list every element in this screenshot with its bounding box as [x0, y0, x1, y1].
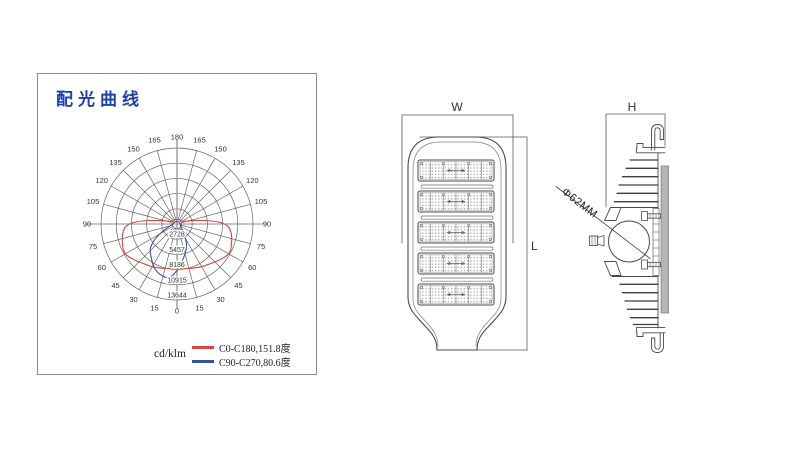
- svg-text:13644: 13644: [167, 293, 187, 300]
- svg-text:60: 60: [98, 263, 106, 272]
- light-distribution-chart: 0151530304545606075759090105105120120135…: [83, 133, 271, 316]
- svg-text:90: 90: [263, 220, 271, 229]
- svg-text:45: 45: [111, 281, 119, 290]
- led-module: [418, 160, 494, 181]
- svg-text:15: 15: [195, 304, 203, 313]
- top-hook: [652, 125, 664, 151]
- length-dimension-label: L: [531, 239, 538, 253]
- svg-text:10915: 10915: [167, 277, 187, 284]
- mount-diameter-label: Φ62MM: [559, 186, 600, 221]
- side-view-drawing: H: [556, 100, 669, 353]
- svg-text:30: 30: [129, 295, 137, 304]
- legend-swatch: [192, 360, 214, 363]
- svg-text:120: 120: [95, 176, 108, 185]
- clamp-bolt: [590, 236, 605, 247]
- lens-plate-bar: [661, 166, 669, 313]
- legend-swatch: [192, 346, 214, 349]
- svg-text:105: 105: [255, 197, 268, 206]
- led-module: [418, 284, 494, 305]
- svg-text:45: 45: [234, 281, 242, 290]
- width-dimension-label: W: [451, 100, 463, 114]
- legend-item: C90-C270,80.6度: [192, 354, 291, 368]
- height-dimension-label: H: [628, 100, 637, 114]
- front-view-drawing: W L: [402, 100, 538, 350]
- svg-text:60: 60: [248, 263, 256, 272]
- svg-text:2728: 2728: [169, 232, 185, 239]
- svg-text:8186: 8186: [169, 262, 185, 269]
- led-module: [418, 222, 494, 243]
- spec-sheet-page: 配光曲线: [0, 0, 802, 468]
- pole-mount-circle: [609, 221, 650, 262]
- chart-legend: cd/klm C0-C180,151.8度C90-C270,80.6度: [154, 340, 291, 368]
- units-label: cd/klm: [154, 348, 186, 360]
- svg-text:75: 75: [89, 242, 97, 251]
- legend-label: C90-C270,80.6度: [219, 354, 291, 369]
- svg-text:5457: 5457: [169, 247, 185, 254]
- top-bracket: [637, 144, 666, 153]
- bottom-bracket: [637, 328, 666, 337]
- bottom-hook: [652, 333, 664, 353]
- svg-text:165: 165: [148, 136, 161, 145]
- svg-text:150: 150: [214, 144, 227, 153]
- svg-text:90: 90: [83, 220, 91, 229]
- technical-drawings: W L: [0, 0, 802, 468]
- svg-text:0: 0: [175, 307, 179, 316]
- svg-text:75: 75: [257, 242, 265, 251]
- legend-label: C0-C180,151.8度: [219, 340, 291, 355]
- bottom-heatsink-fins: [620, 284, 658, 324]
- svg-text:120: 120: [246, 176, 259, 185]
- svg-text:135: 135: [232, 158, 245, 167]
- svg-text:15: 15: [150, 304, 158, 313]
- led-module: [418, 253, 494, 274]
- svg-text:150: 150: [127, 144, 140, 153]
- top-heatsink-fins: [615, 160, 659, 202]
- svg-text:105: 105: [87, 197, 100, 206]
- svg-text:30: 30: [216, 295, 224, 304]
- led-modules: [418, 160, 494, 305]
- legend-rows: C0-C180,151.8度C90-C270,80.6度: [192, 340, 291, 368]
- legend-item: C0-C180,151.8度: [192, 340, 291, 354]
- svg-text:135: 135: [109, 158, 122, 167]
- svg-text:180: 180: [171, 133, 184, 142]
- led-module: [418, 191, 494, 212]
- svg-text:165: 165: [193, 136, 206, 145]
